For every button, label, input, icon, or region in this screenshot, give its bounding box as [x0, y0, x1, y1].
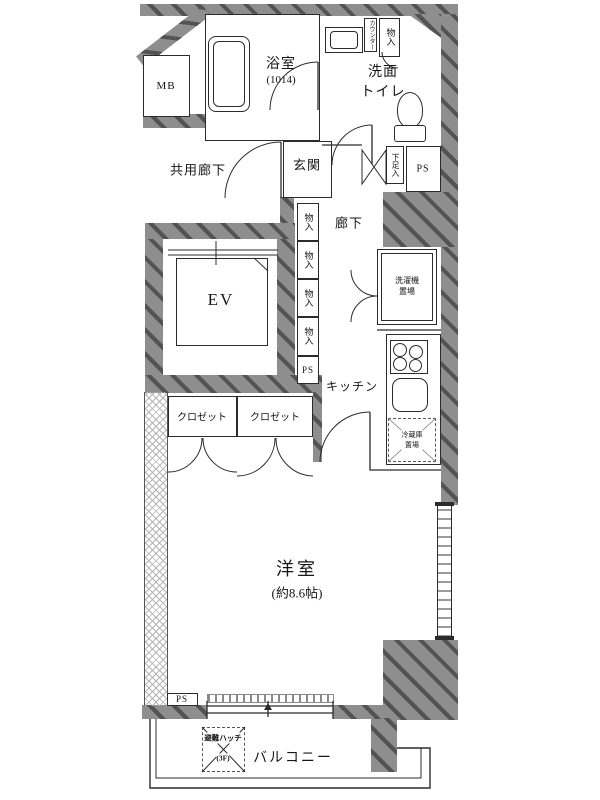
floorplan-page: MB 浴室 (1014) カウンター 物入 洗面 トイレ 共用廊下 玄関 下足入… — [0, 0, 600, 800]
bath-label: 浴室 — [266, 53, 296, 73]
counter-label: カウンター — [368, 20, 374, 50]
kitchen-room-divider-line — [370, 462, 441, 470]
fridge-label-line2: 置場 — [402, 440, 423, 450]
entrance-label: 玄関 — [293, 155, 321, 174]
hatch-label-line1: 避難ハッチ — [204, 733, 242, 744]
balcony-label: バルコニー — [253, 747, 333, 767]
closet-right-label: クロゼット — [250, 409, 300, 424]
storage-label-2: 物入 — [304, 251, 313, 269]
storage-label-3: 物入 — [304, 289, 313, 307]
ps-bottom-label: PS — [176, 694, 188, 704]
fridge-label-line1: 冷蔵庫 — [402, 430, 423, 440]
shoe-bifold-door — [362, 150, 386, 184]
closet-left-label: クロゼット — [177, 409, 227, 424]
common-corridor-label: 共用廊下 — [170, 160, 226, 179]
bath-size-label: (1014) — [266, 74, 295, 86]
washer-label: 洗濯機 置場 — [395, 275, 419, 297]
washer-label-line2: 置場 — [395, 286, 419, 297]
washroom-label-line2: トイレ — [361, 81, 406, 101]
ev-label: EV — [208, 290, 235, 310]
door-symbols-layer — [0, 0, 600, 800]
mb-label: MB — [156, 80, 175, 92]
washer-label-line1: 洗濯機 — [395, 275, 419, 286]
ps-top-label: PS — [416, 164, 429, 175]
hatch-label-line2: (3F) — [216, 754, 229, 763]
entrance-door-arc — [225, 142, 281, 198]
kitchen-door-arc — [320, 412, 370, 462]
corridor-label: 廊下 — [335, 213, 363, 232]
washroom-label-line1: 洗面 — [361, 61, 406, 81]
room-size-label: (約8.6帖) — [272, 583, 323, 602]
ev-door-lines — [168, 241, 278, 265]
room-label: 洋室 — [276, 555, 318, 581]
storage-label-4: 物入 — [304, 327, 313, 345]
storage-top-label: 物入 — [386, 28, 395, 46]
storage-label-1: 物入 — [304, 213, 313, 231]
closet-right-door-arcs — [237, 438, 313, 476]
ev-cab-chamfer — [254, 258, 268, 271]
fridge-label: 冷蔵庫 置場 — [402, 430, 423, 450]
ps-mid-label: PS — [302, 365, 314, 375]
kitchen-label: キッチン — [326, 378, 378, 395]
washroom-label: 洗面 トイレ — [361, 61, 406, 101]
washer-bifold-top-arc — [351, 270, 377, 296]
washer-bifold-bottom-arc — [351, 296, 377, 322]
closet-left-door-arcs — [168, 438, 237, 472]
shoe-cabinet-label: 下足入 — [391, 153, 399, 177]
